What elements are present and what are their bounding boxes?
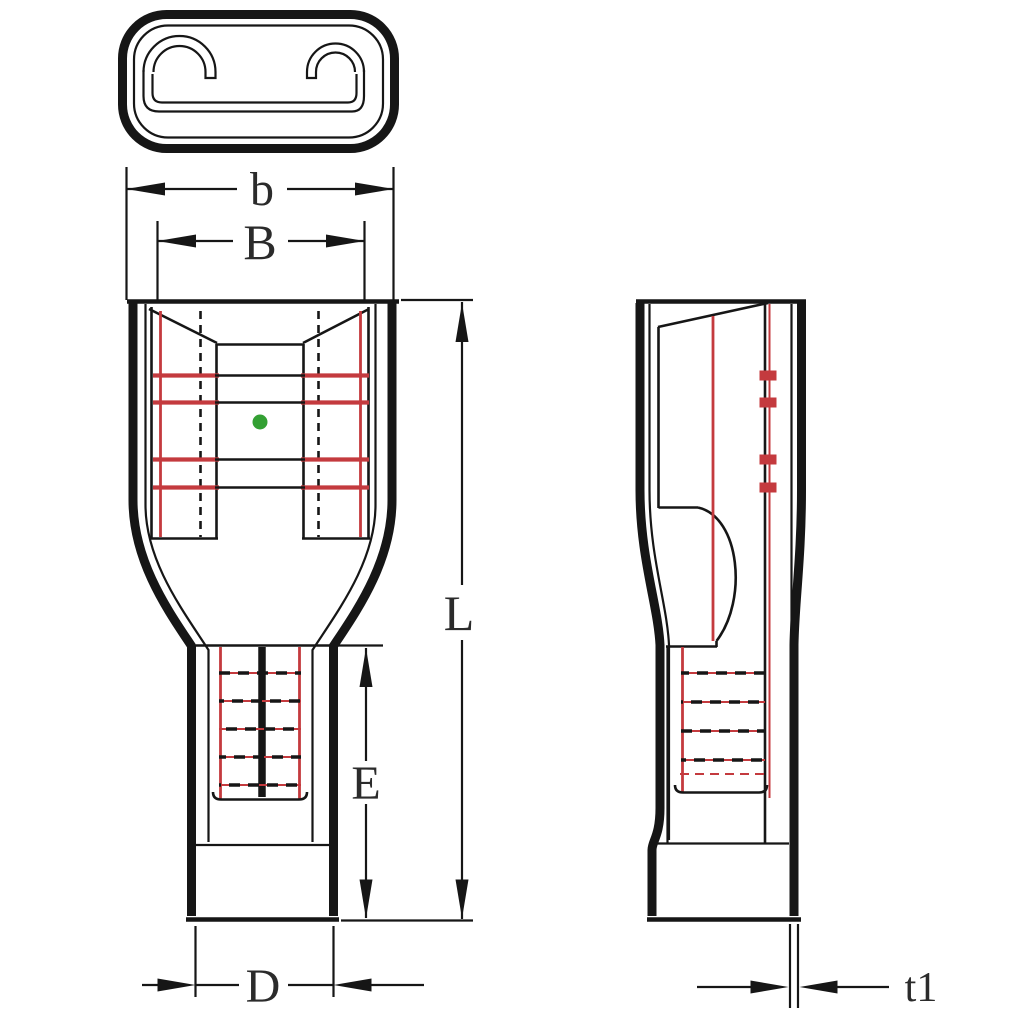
left-hook-tab [144,36,216,78]
arrowhead-right [326,235,365,248]
arrowhead-right [158,979,196,992]
terminal-drawing: b B [0,0,1024,1024]
sleeve-inner-outline [134,26,383,138]
dim-label-D: D [246,960,281,1013]
barrel-bottom-line [675,785,767,793]
shell-right-edge [794,303,802,916]
channel-side-lines [217,344,304,538]
rib-mark [760,398,777,408]
front-view [127,302,399,920]
dimension-B: B [158,214,365,300]
arrowhead-up [360,648,373,687]
rib-end-marks [760,371,777,493]
sleeve-outer-outline [123,15,395,149]
right-hook-tab [307,43,364,78]
dim-label-B: B [243,214,276,270]
dim-label-L: L [444,585,475,641]
rib-mark [760,483,777,493]
dimension-t1: t1 [697,924,937,1011]
shell-right-edge [334,303,393,916]
top-view [123,15,395,149]
rib-channel-cross-lines [215,376,305,488]
dim-label-b: b [250,163,274,216]
contact-channel-inner [153,74,357,103]
arrowhead-up [456,303,469,342]
dimension-E: E [336,646,383,919]
dimension-D: D [142,926,424,1013]
arrowhead-down [360,880,373,919]
rib-mark [760,455,777,465]
contact-curved-notch [698,508,736,648]
barrel-serrations [681,673,765,760]
arrowhead-right [751,981,789,994]
rib-mark [760,371,777,381]
funnel-mouth-slants [149,309,369,343]
extension-lines-t1 [790,924,798,1008]
arrowhead-left [158,235,197,248]
dim-label-E: E [351,757,380,810]
side-view [636,302,806,920]
shell-left-inner-wall [146,304,209,842]
lower-rib-red-lines [153,460,369,488]
center-indicator-dot [253,415,268,430]
contact-channel-outer [144,70,365,112]
arrowhead-right [355,183,394,196]
arrowhead-left [127,183,166,196]
arrowhead-left [800,981,838,994]
dim-label-t1: t1 [905,965,938,1011]
upper-rib-red-lines [153,376,369,403]
arrowhead-left [334,979,372,992]
drawing-canvas: b B [0,0,1024,1024]
serration-red-lines [681,673,765,760]
arrowhead-down [456,880,469,919]
